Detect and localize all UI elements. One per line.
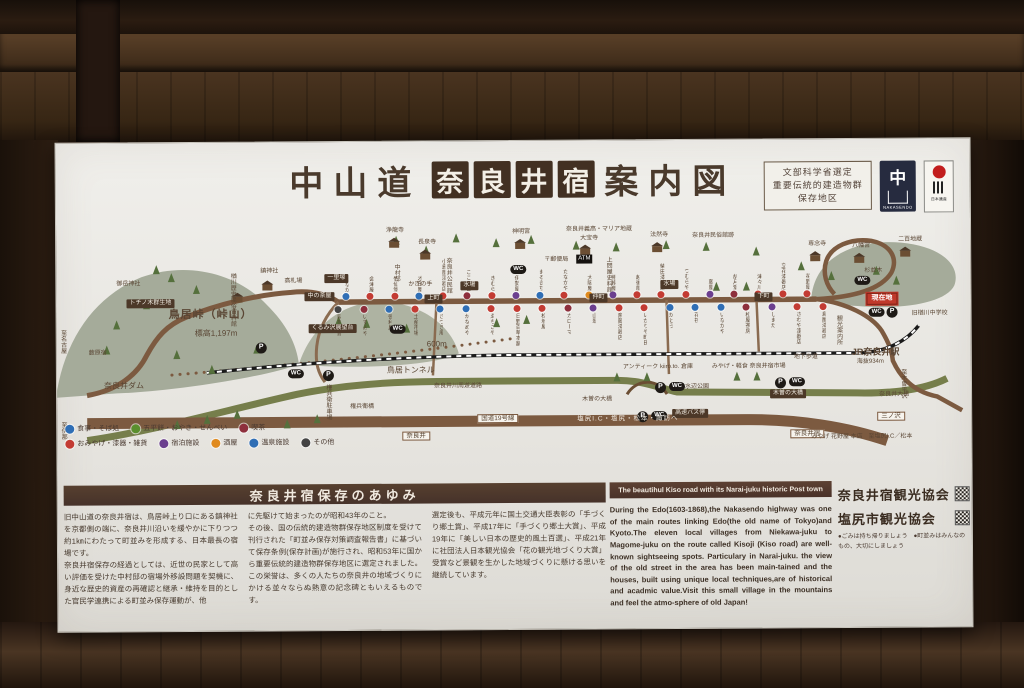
legend-label: 食事・そば処	[77, 423, 119, 433]
legend-category-icon	[65, 439, 74, 448]
map-label: 権兵衛橋	[350, 404, 374, 411]
parking-icon: P	[775, 377, 786, 388]
toilet-icon: WC	[854, 276, 870, 285]
qr-code-icon	[955, 510, 970, 525]
map-label: 鎮神社	[260, 268, 278, 275]
map-label: 奈良井川周遊道路	[434, 383, 482, 390]
map-label: 上町	[424, 294, 442, 303]
map-label: 木曽の大橋	[770, 389, 806, 398]
sign-photo: 中山道 奈 良 井 宿 案内図 文部科学省選定 重要伝統的建造物群 保存地区 中…	[0, 0, 1024, 688]
legend-label: 五平餅・おやき・せんべい	[143, 423, 227, 434]
legend-category-icon	[211, 438, 220, 447]
map-label: 二百地蔵	[898, 237, 922, 244]
legend-label: 喫茶	[251, 423, 265, 433]
map-label: 三ノ沢	[877, 412, 905, 422]
wood-beam-mid	[0, 34, 1024, 72]
legend-item: 宿泊施設	[159, 438, 199, 448]
legend-label: その他	[313, 437, 334, 447]
map-label: 中村邸	[392, 264, 399, 282]
wood-side-right	[968, 140, 1024, 640]
map-label: 神明宮	[512, 229, 530, 236]
title-block: 宿	[557, 161, 594, 198]
map-label: 御岳神社	[116, 281, 140, 288]
map-label: 旧楢川中学校	[912, 310, 948, 317]
legend-label: 温泉施設	[261, 437, 289, 447]
legend-item: 喫茶	[239, 423, 265, 433]
selection-line: 重要伝統的建造物群	[773, 179, 863, 193]
heritage-selection-box: 文部科学省選定 重要伝統的建造物群 保存地区	[764, 161, 872, 211]
map-label: 法然寺	[650, 232, 668, 239]
toilet-icon: WC	[869, 308, 885, 317]
map-label: 一里塚	[324, 274, 348, 283]
legend-category-icon	[65, 424, 74, 433]
legend-category-icon	[239, 423, 248, 432]
map-label: 大宝寺	[580, 235, 598, 242]
map-label: みやげ 花野屋 本店 至塩尻I.C／松本	[811, 434, 912, 442]
legend-category-icon	[159, 439, 168, 448]
map-label: 奈良井民俗館跡	[692, 233, 734, 240]
japan-heritage-logo: 日本遺産	[924, 160, 954, 212]
map-label: 奈良井義高・マリア地蔵	[566, 226, 632, 233]
map-label: 塩尻I.C・塩尻・松本・諏訪へ	[577, 415, 678, 423]
title-block: 奈	[431, 161, 468, 198]
legend-category-icon	[301, 438, 310, 447]
map-label: 海抜934m	[857, 359, 884, 366]
map-label: 国道19号線	[477, 414, 518, 424]
map-label: 専念寺	[808, 241, 826, 248]
title-prefix: 中山道	[289, 156, 421, 206]
legend-item: 五平餅・おやき・せんべい	[131, 423, 227, 434]
map-label: 八幡宮	[852, 243, 870, 250]
title-block: 井	[515, 161, 552, 198]
parking-icon: P	[655, 382, 666, 393]
sign-panel: 中山道 奈 良 井 宿 案内図 文部科学省選定 重要伝統的建造物群 保存地区 中…	[55, 137, 974, 633]
nakasendo-logo: 中 NAKASENDO	[880, 161, 916, 212]
toilet-icon: WC	[789, 377, 805, 386]
map-label: みやげ・軽食 奈良井宿市場	[712, 363, 786, 370]
nakasendo-logo-character: 中	[889, 164, 906, 189]
history-column: 選定後も、平成元年に国土交通大臣表彰の「手づくり郷土賞」、平成17年に「手づくり…	[432, 508, 607, 605]
nakasendo-gate-icon	[888, 190, 908, 203]
town-map: 山なか会津屋竹仙堂才田屋小島屋漆器店こころ音きむら伊勢屋まるきちたなかや大阪屋相…	[56, 220, 972, 484]
map-label: 標高1,197m	[195, 329, 238, 338]
legend-row: 食事・そば処五平餅・おやき・せんべい喫茶	[65, 422, 334, 434]
map-legend: 食事・そば処五平餅・おやき・せんべい喫茶 おみやげ・漆器・雑貨宿泊施設酒屋温泉施…	[65, 422, 334, 454]
legend-label: 宿泊施設	[171, 438, 199, 448]
parking-icon: P	[256, 343, 267, 354]
map-label: 鳥居トンネル	[387, 365, 435, 374]
selection-line: 保存地区	[773, 192, 863, 206]
map-label: 鳥居峠（峠山）	[169, 309, 253, 322]
map-label: 〒郵便局	[544, 257, 568, 264]
legend-label: 酒屋	[223, 438, 237, 448]
association-name: 奈良井宿観光協会	[838, 484, 950, 504]
association-line: 奈良井宿観光協会	[838, 484, 970, 504]
map-label: 薮原宿	[89, 350, 107, 357]
map-label: 中の茶屋	[304, 292, 334, 301]
map-label: 至木曽平沢	[899, 369, 906, 399]
parking-icon: P	[323, 370, 334, 381]
barcode-icon	[933, 181, 945, 193]
legend-label: おみやげ・漆器・雑貨	[77, 438, 147, 448]
map-label: 水辺公園	[685, 384, 709, 391]
map-label: JR奈良井駅	[852, 347, 900, 358]
qr-code-icon	[955, 486, 970, 501]
map-label: 下町	[754, 292, 772, 301]
legend-item: おみやげ・漆器・雑貨	[65, 438, 147, 449]
title-suffix: 案内図	[604, 154, 736, 204]
english-section: The beautihul Kiso road with its Narai-j…	[610, 481, 833, 609]
toilet-icon: WC	[390, 325, 406, 334]
wood-beam-low	[0, 72, 1024, 142]
association-line: 塩尻市観光協会	[838, 508, 970, 528]
wood-post-left	[76, 0, 120, 142]
legend-item: 食事・そば処	[65, 423, 119, 433]
wood-beam-top	[0, 0, 1024, 34]
selection-line: 文部科学省選定	[773, 166, 863, 180]
history-columns: 旧中山道の奈良井宿は、鳥居峠上り口にある鎮神社を京都側の端に、奈良井川沿いを緩や…	[64, 508, 607, 607]
map-label: 木曽の大橋	[582, 396, 612, 403]
english-heading: The beautihul Kiso road with its Narai-j…	[610, 481, 832, 498]
map-label: 600m	[427, 339, 447, 348]
legend-category-icon	[249, 438, 258, 447]
japan-heritage-caption: 日本遺産	[931, 196, 947, 202]
legend-item: 酒屋	[211, 438, 237, 448]
map-label: 観光案内所	[835, 315, 842, 345]
english-body: During the Edo(1603-1868),the Nakasendo …	[610, 503, 833, 609]
map-label: 奈良井公民館	[444, 257, 451, 293]
history-column: に先駆けて始まったのが昭和43年のこと。 その後、国の伝統的建造物群保存地区制度…	[248, 510, 423, 607]
history-column: 旧中山道の奈良井宿は、鳥居峠上り口にある鎮神社を京都側の端に、奈良井川沿いを緩や…	[64, 511, 239, 608]
manner-notes: ●ごみは持ち帰りましょう ●町並みはみんなのもの、大切にしましょう	[838, 532, 970, 552]
map-label: 権兵衛駐車場	[324, 384, 331, 420]
nakasendo-logo-caption: NAKASENDO	[883, 205, 913, 210]
toilet-icon: WC	[669, 382, 685, 391]
map-label: 奈良井	[402, 432, 430, 442]
association-name: 塩尻市観光協会	[838, 508, 936, 528]
map-label: トチノ木群生地	[126, 299, 174, 308]
title-highlight-blocks: 奈 良 井 宿	[431, 161, 594, 199]
map-label: 奈良井ダム	[104, 381, 144, 390]
rising-sun-icon	[932, 165, 945, 178]
badge-group: 文部科学省選定 重要伝統的建造物群 保存地区 中 NAKASENDO 日本遺産	[764, 160, 954, 213]
parking-icon: P	[887, 307, 898, 318]
wood-side-left	[0, 140, 58, 640]
map-label: アンティーク kiiro.to. 倉庫	[623, 364, 693, 371]
history-heading: 奈良井宿保存のあゆみ	[64, 482, 606, 505]
map-label: 至名古屋	[59, 330, 66, 354]
legend-item: 温泉施設	[249, 437, 289, 447]
toilet-icon: WC	[510, 265, 526, 274]
map-label: 地下歩道	[794, 354, 818, 361]
legend-item: その他	[301, 437, 334, 447]
legend-category-icon	[131, 424, 140, 433]
map-label: 水場	[460, 281, 478, 290]
map-label: かぎの手	[408, 281, 432, 288]
toilet-icon: WC	[288, 369, 304, 378]
map-label: ATM	[576, 255, 592, 264]
history-section: 奈良井宿保存のあゆみ 旧中山道の奈良井宿は、鳥居峠上り口にある鎮神社を京都側の端…	[64, 482, 607, 607]
map-label: 長泉寺	[418, 239, 436, 246]
map-label: 高札場	[284, 278, 302, 285]
you-are-here-marker: 現在地	[866, 293, 897, 305]
map-label: 仲町	[589, 293, 607, 302]
map-label: くるみ沢展望台	[309, 324, 357, 333]
map-label: 浄龍寺	[386, 228, 404, 235]
map-label: 上問屋史料館	[604, 256, 611, 292]
map-label: 杉並木	[864, 268, 882, 275]
legend-row: おみやげ・漆器・雑貨宿泊施設酒屋温泉施設その他	[65, 437, 334, 449]
associations-section: 奈良井宿観光協会 塩尻市観光協会 ●ごみは持ち帰りましょう ●町並みはみんなのも…	[838, 484, 970, 552]
map-label: 楢川歴史民俗資料館	[228, 273, 235, 327]
title-block: 良	[473, 161, 510, 198]
map-label: 水場	[660, 280, 678, 289]
